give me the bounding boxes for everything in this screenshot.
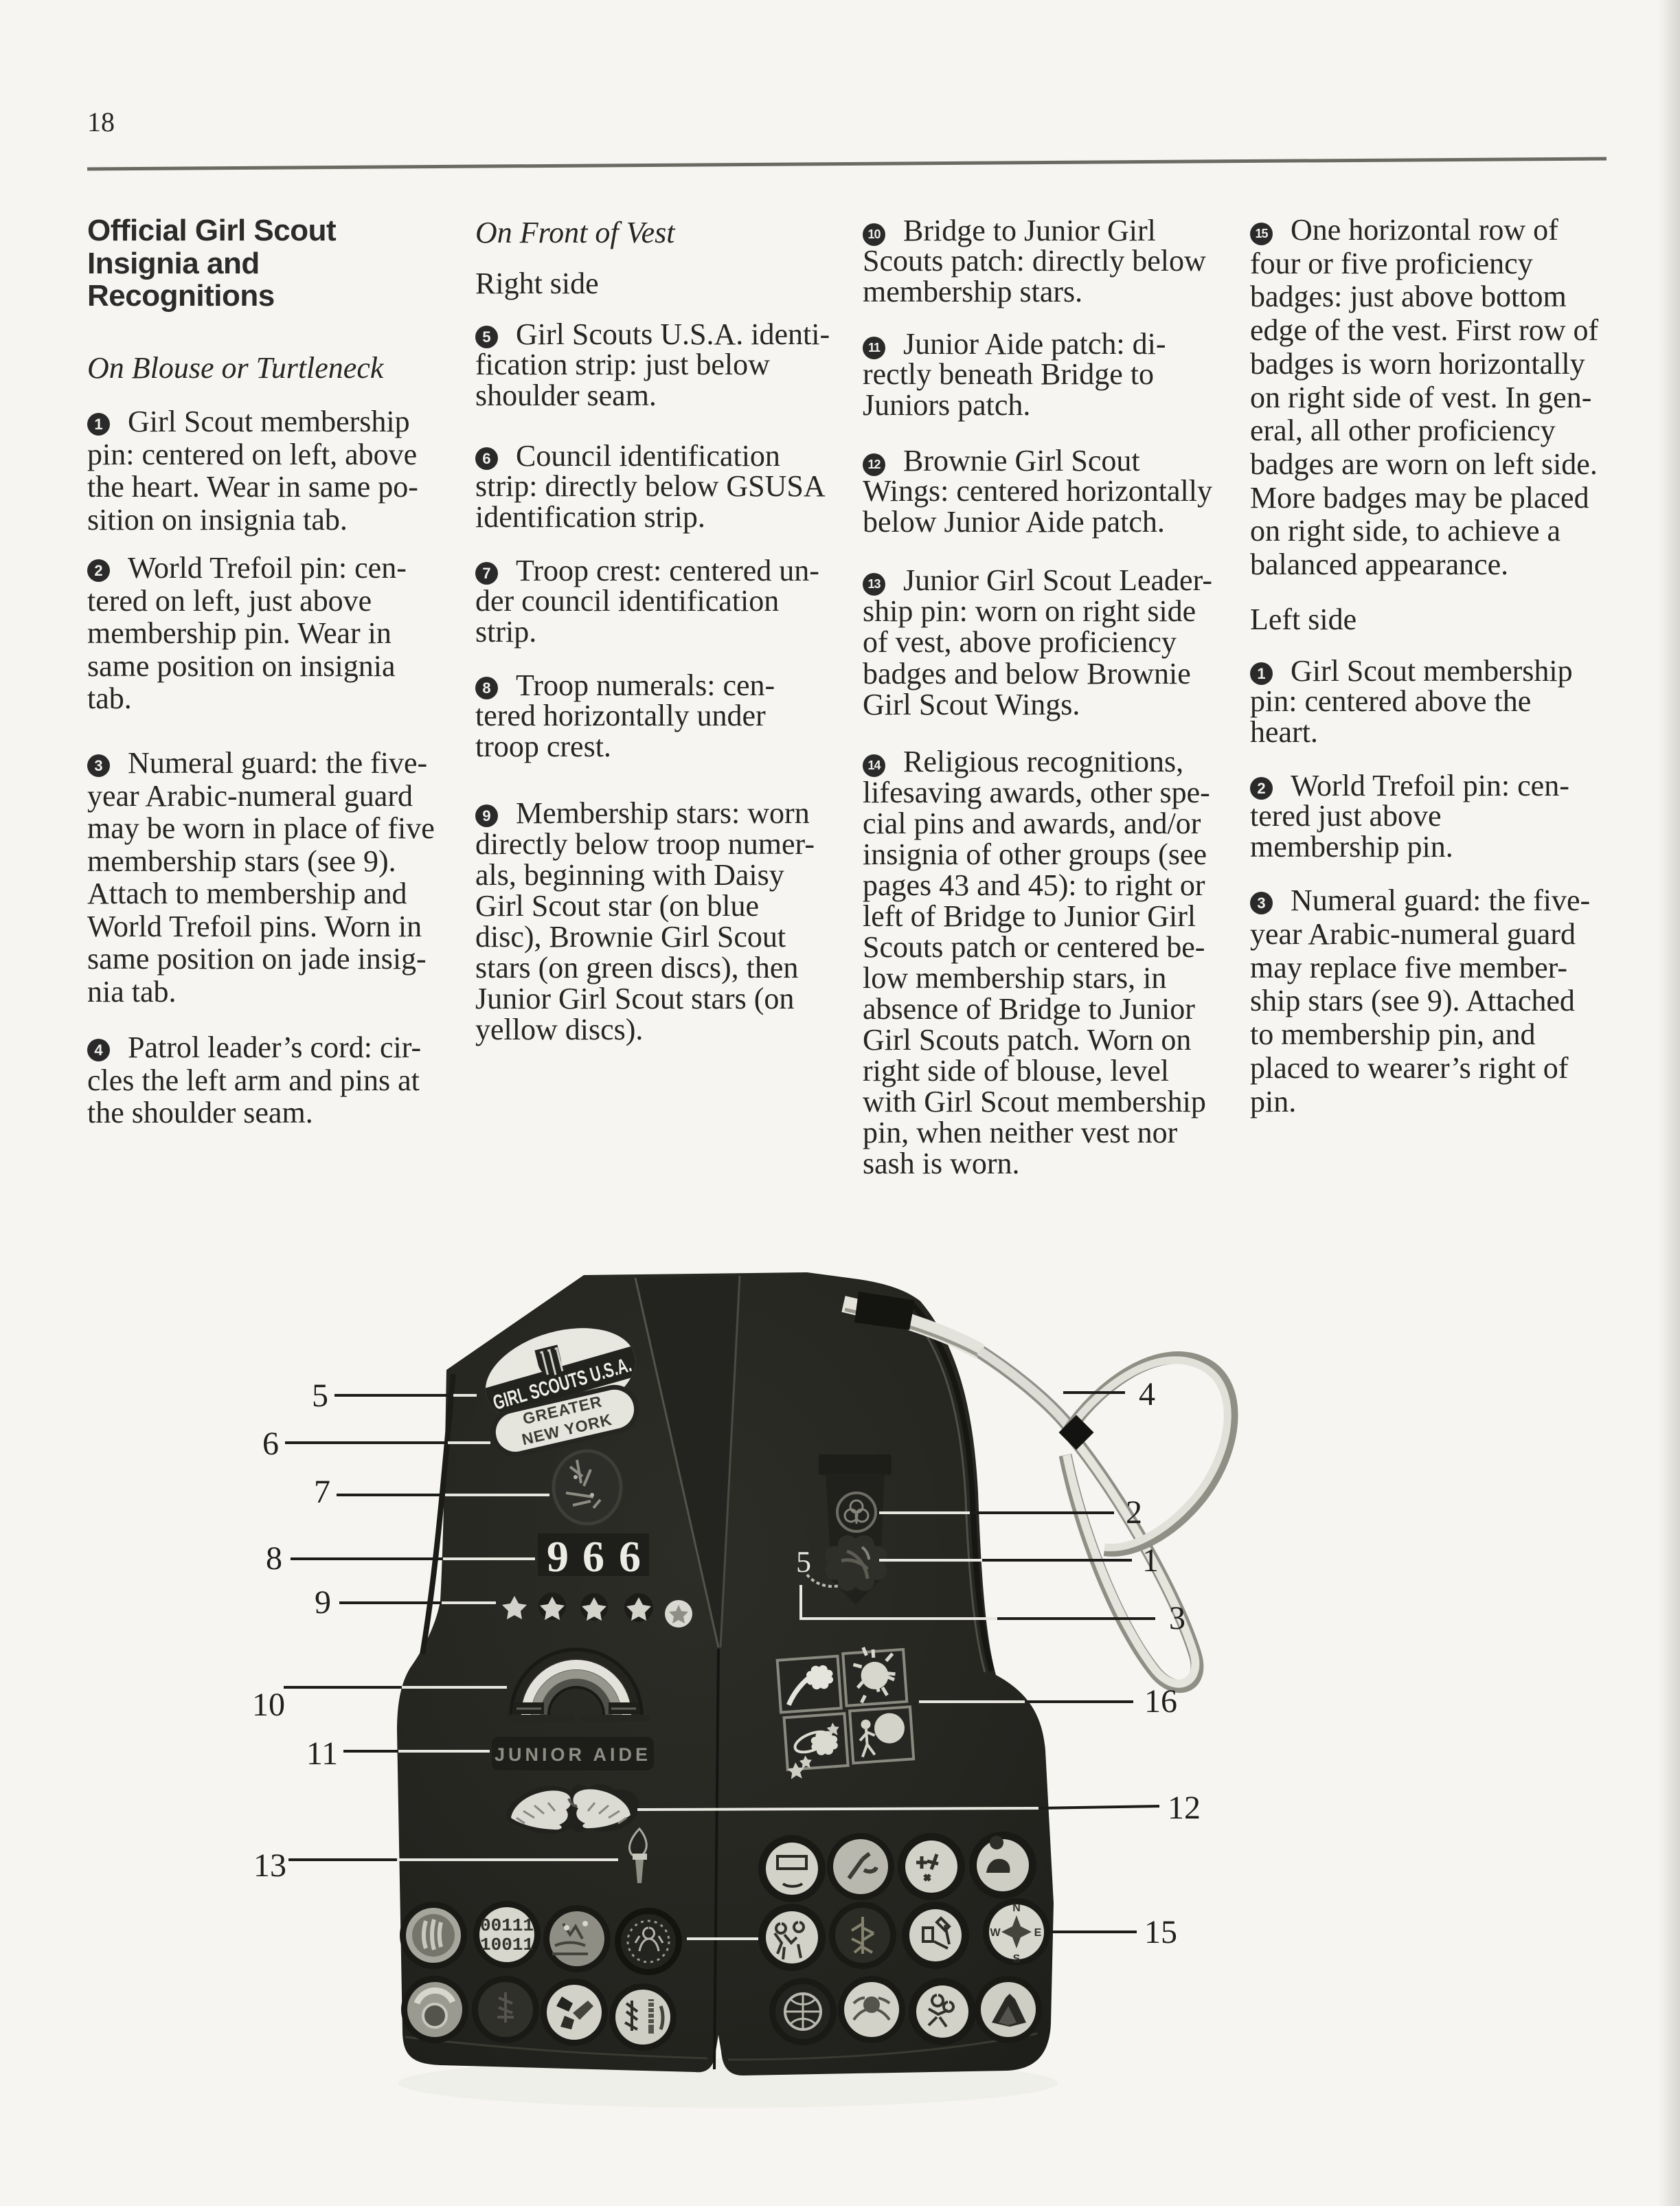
svg-text:6: 6 xyxy=(262,1426,279,1462)
svg-text:S: S xyxy=(1013,1953,1021,1965)
svg-text:N: N xyxy=(1012,1902,1021,1914)
svg-text:4: 4 xyxy=(1139,1376,1155,1412)
svg-text:E: E xyxy=(1034,1927,1042,1939)
svg-text:1: 1 xyxy=(1142,1542,1159,1579)
svg-text:9: 9 xyxy=(315,1584,331,1621)
svg-text:12: 12 xyxy=(1168,1790,1201,1826)
svg-text:10: 10 xyxy=(252,1687,285,1723)
svg-text:15: 15 xyxy=(1144,1914,1177,1950)
svg-text:7: 7 xyxy=(314,1474,330,1510)
svg-text:10011: 10011 xyxy=(480,1935,534,1955)
svg-text:W: W xyxy=(990,1927,1001,1939)
svg-text:6: 6 xyxy=(619,1532,641,1581)
svg-text:3: 3 xyxy=(1169,1600,1185,1636)
svg-text:16: 16 xyxy=(1144,1683,1177,1720)
svg-text:8: 8 xyxy=(266,1540,282,1577)
svg-text:2: 2 xyxy=(1126,1494,1142,1531)
svg-text:6: 6 xyxy=(582,1532,604,1581)
svg-text:5: 5 xyxy=(796,1545,811,1579)
svg-text:5: 5 xyxy=(312,1377,328,1414)
svg-text:9: 9 xyxy=(547,1532,569,1581)
svg-text:00111: 00111 xyxy=(480,1915,534,1936)
svg-text:13: 13 xyxy=(253,1847,286,1884)
svg-text:JUNIOR AIDE: JUNIOR AIDE xyxy=(495,1744,651,1765)
svg-text:11: 11 xyxy=(306,1735,338,1772)
